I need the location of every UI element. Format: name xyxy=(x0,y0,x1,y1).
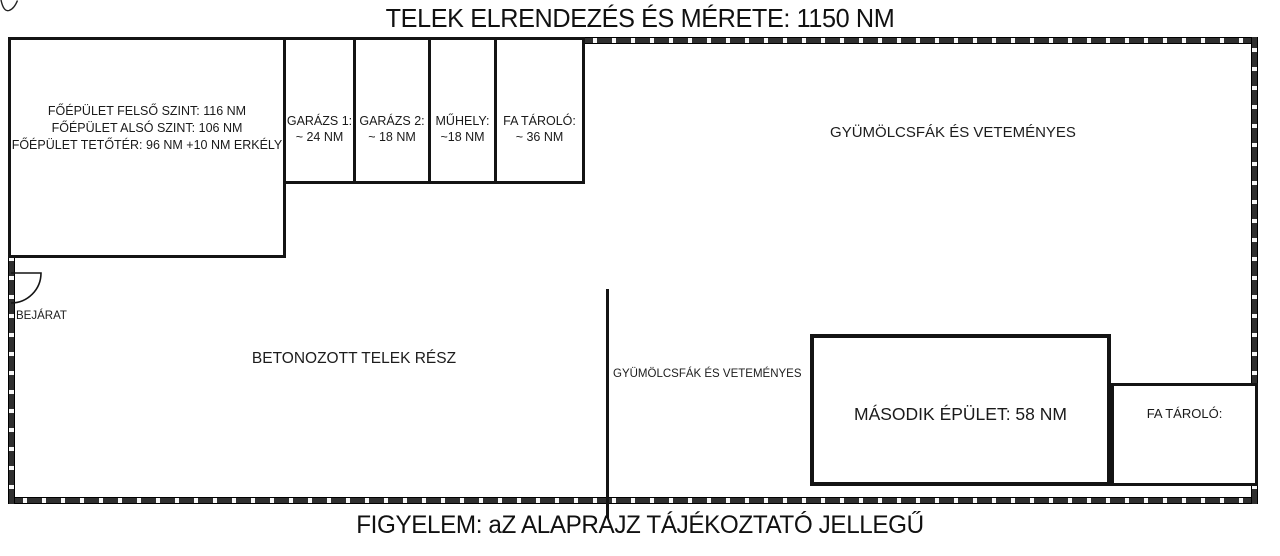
workshop-area: ~18 NM xyxy=(440,129,484,145)
orchard-area-label-right: GYÜMÖLCSFÁK ÉS VETEMÉNYES xyxy=(828,124,1078,141)
second-building-label: MÁSODIK ÉPÜLET: 58 NM xyxy=(854,404,1067,425)
main-building-line-upper: FŐÉPÜLET FELSŐ SZINT: 116 NM xyxy=(48,103,246,120)
plot-divider-line xyxy=(606,289,609,518)
garage-2-name: GARÁZS 2: xyxy=(359,113,424,129)
workshop-box: MŰHELY: ~18 NM xyxy=(431,40,497,181)
site-plan: TELEK ELRENDEZÉS ÉS MÉRETE: 1150 NM FŐÉP… xyxy=(0,0,1280,556)
orchard-area-label-middle: GYÜMÖLCSFÁK ÉS VETEMÉNYES xyxy=(613,368,802,380)
concrete-area-label: BETONOZOTT TELEK RÉSZ xyxy=(244,350,464,368)
garage-2-box: GARÁZS 2: ~ 18 NM xyxy=(356,40,431,181)
plan-title: TELEK ELRENDEZÉS ÉS MÉRETE: 1150 NM xyxy=(19,3,1261,34)
wood-storage-top-box: FA TÁROLÓ: ~ 36 NM xyxy=(497,40,582,181)
entrance-door-icon xyxy=(9,270,47,308)
second-building-box: MÁSODIK ÉPÜLET: 58 NM xyxy=(810,334,1111,486)
garage-1-name: GARÁZS 1: xyxy=(287,113,352,129)
wood-storage-right-label: FA TÁROLÓ: xyxy=(1147,406,1223,421)
wood-storage-top-name: FA TÁROLÓ: xyxy=(503,113,576,129)
garage-1-area: ~ 24 NM xyxy=(296,129,344,145)
entrance-label: BEJÁRAT xyxy=(16,310,67,322)
main-building-box: FŐÉPÜLET FELSŐ SZINT: 116 NM FŐÉPÜLET AL… xyxy=(8,37,286,258)
main-building-line-lower: FŐÉPÜLET ALSÓ SZINT: 106 NM xyxy=(52,120,243,137)
main-building-line-attic: FŐÉPÜLET TETŐTÉR: 96 NM +10 NM ERKÉLY xyxy=(12,137,283,154)
wood-storage-right-box: FA TÁROLÓ: xyxy=(1111,383,1258,486)
garage-1-box: GARÁZS 1: ~ 24 NM xyxy=(286,40,356,181)
garage-2-area: ~ 18 NM xyxy=(368,129,416,145)
outbuilding-strip: GARÁZS 1: ~ 24 NM GARÁZS 2: ~ 18 NM MŰHE… xyxy=(283,37,585,184)
workshop-name: MŰHELY: xyxy=(436,113,490,129)
footer-note: FIGYELEM: aZ ALAPRAJZ TÁJÉKOZTATÓ JELLEG… xyxy=(19,511,1261,540)
wood-storage-top-area: ~ 36 NM xyxy=(516,129,564,145)
plot-wall-bottom xyxy=(8,497,1258,504)
